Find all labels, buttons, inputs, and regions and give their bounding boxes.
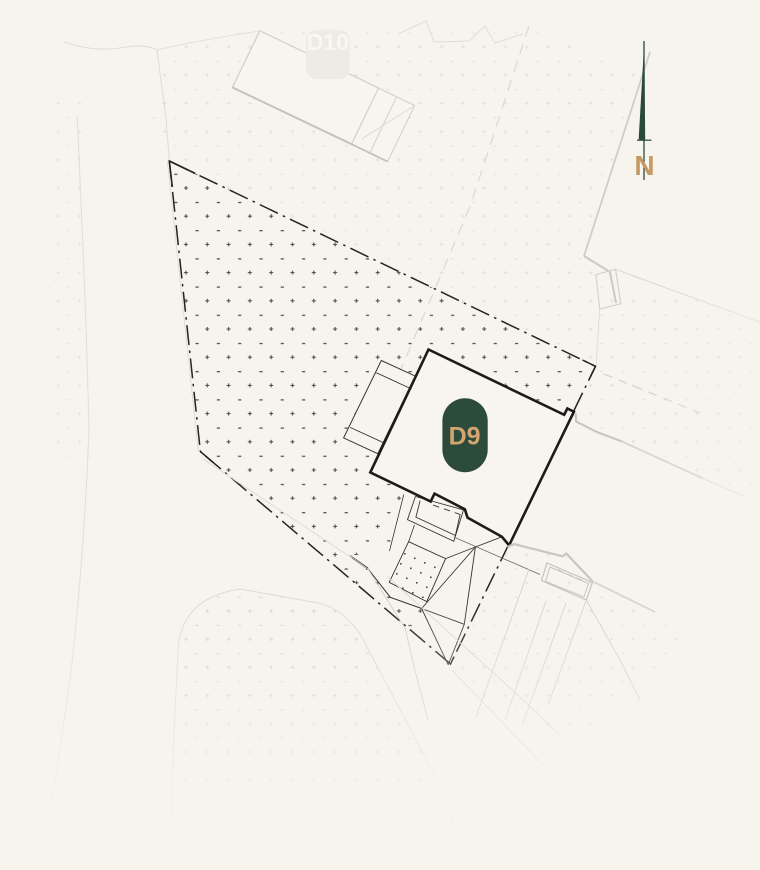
svg-text:D9: D9 xyxy=(449,423,481,451)
svg-text:D10: D10 xyxy=(307,29,349,55)
svg-text:N: N xyxy=(634,150,654,181)
